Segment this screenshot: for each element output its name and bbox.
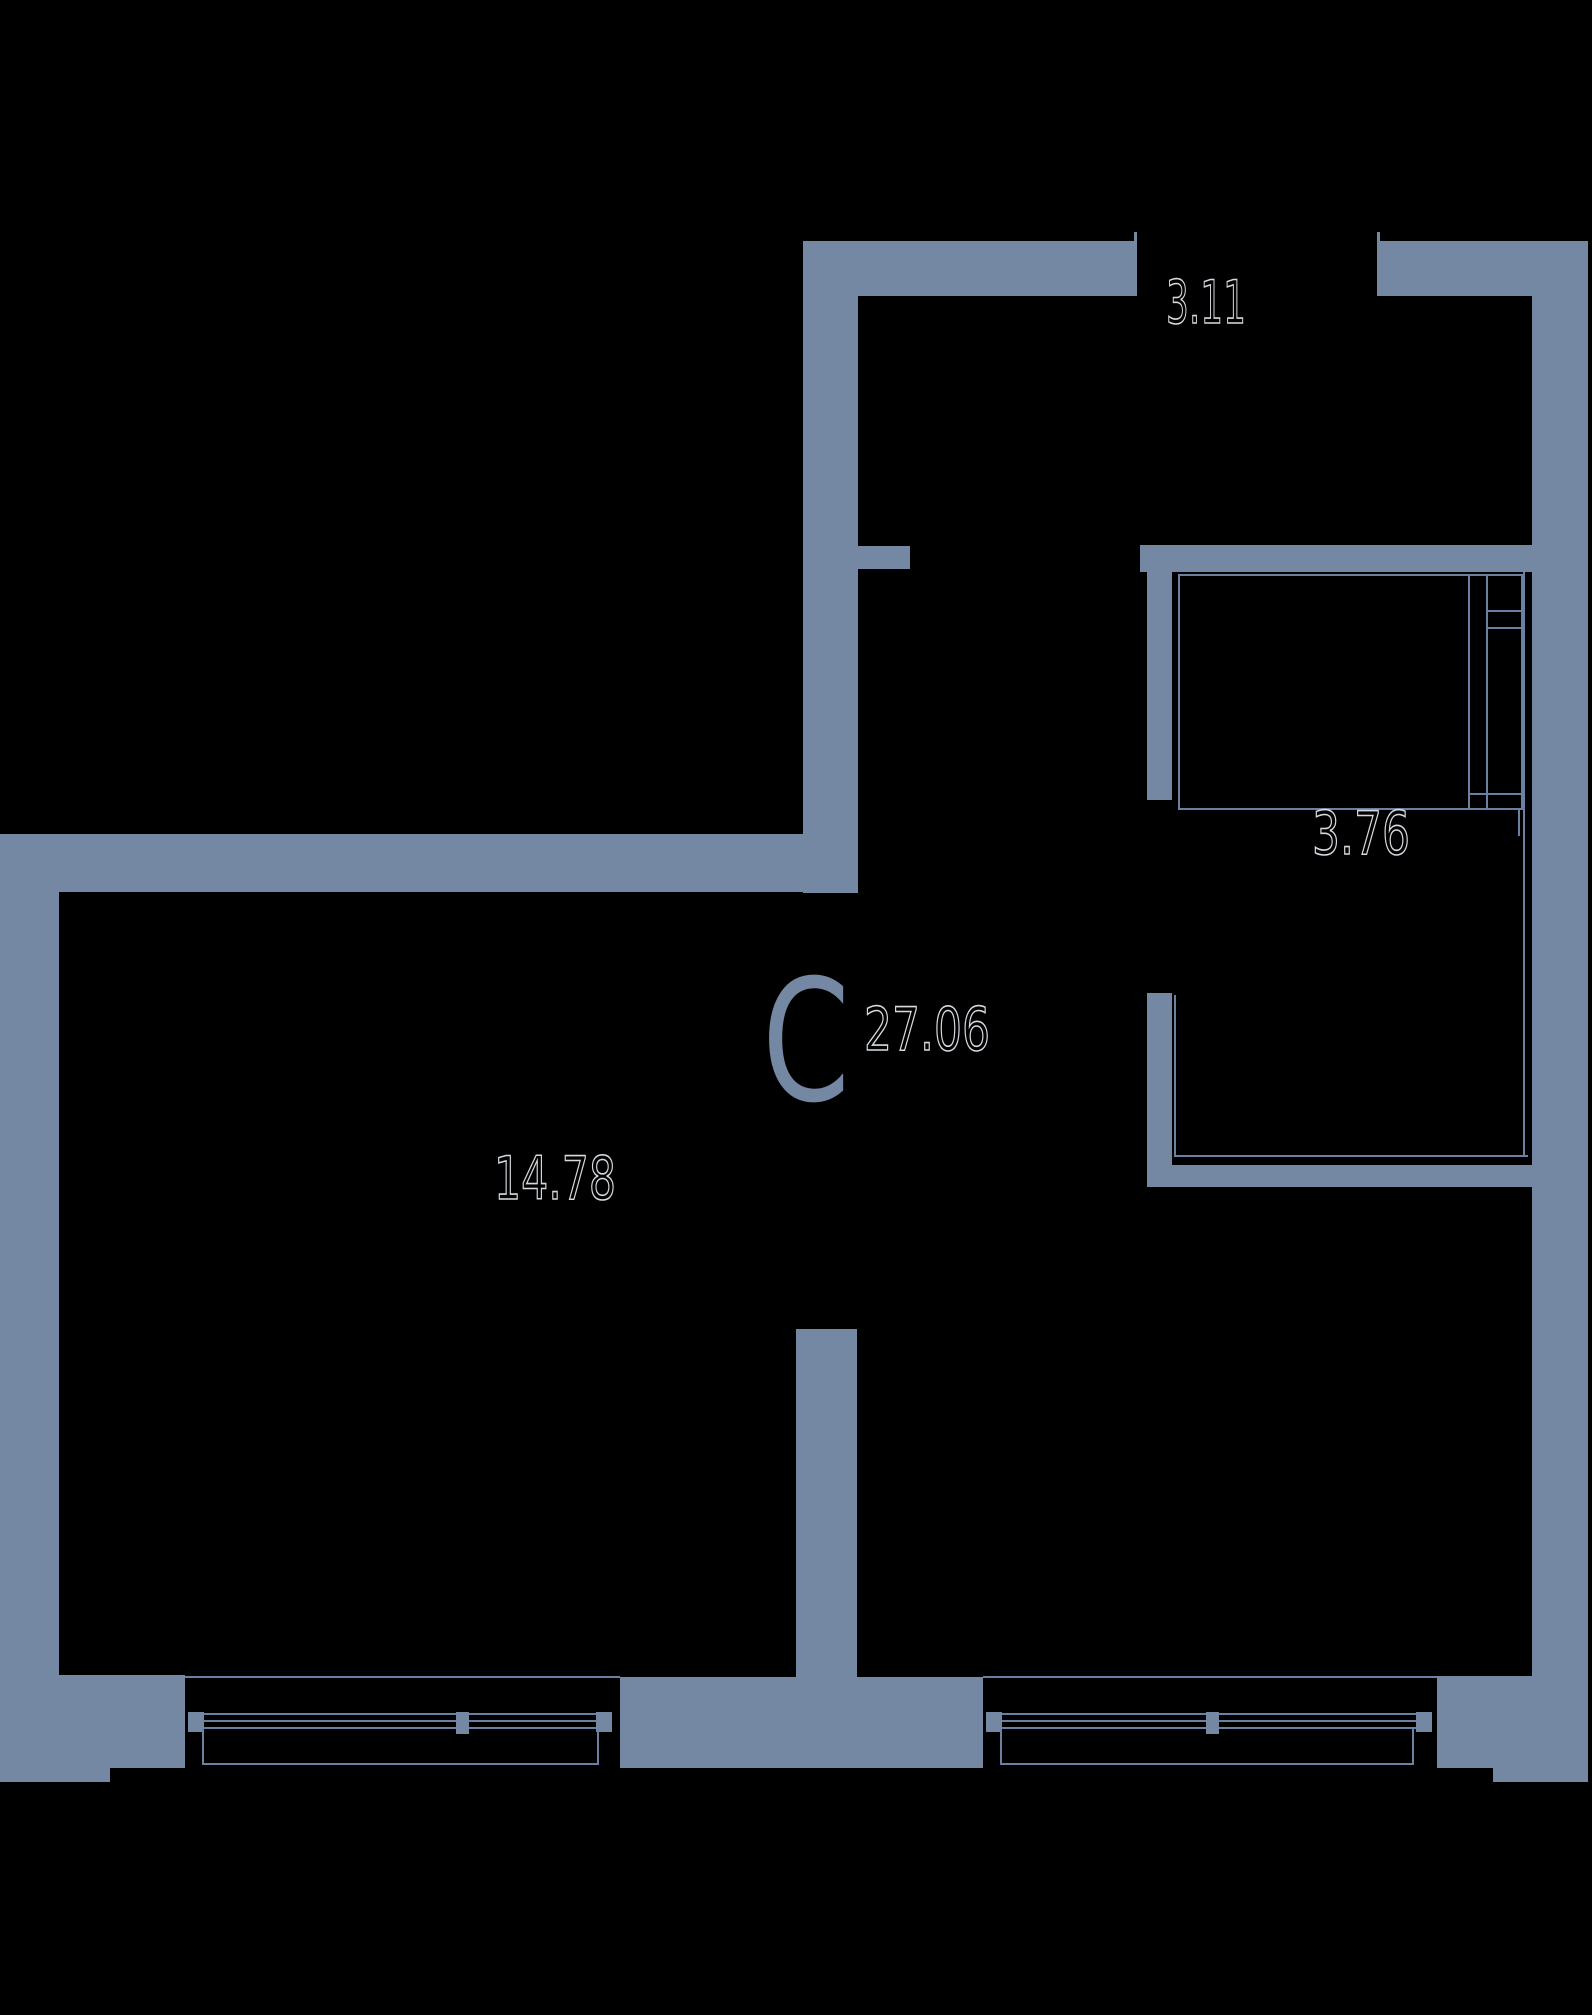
labels-layer: C 27.06 3.11 3.76 14.78 — [0, 0, 1592, 2015]
floor-plan: C 27.06 3.11 3.76 14.78 — [0, 0, 1592, 2015]
unit-type-label: C — [762, 943, 850, 1140]
living-area-label: 14.78 — [494, 1144, 616, 1214]
total-area-label: 27.06 — [864, 995, 990, 1065]
storage-area-label: 3.76 — [1312, 799, 1410, 869]
hallway-area-label: 3.11 — [1166, 268, 1246, 338]
